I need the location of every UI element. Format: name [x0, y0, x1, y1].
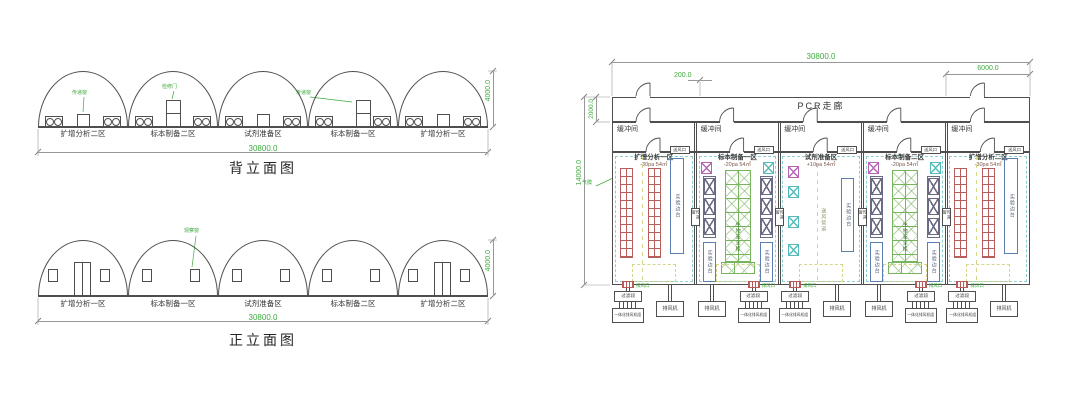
supply-outlet-box: 送风口 [1004, 146, 1024, 154]
fan-circle [292, 118, 300, 126]
exhaust-grille [748, 281, 760, 288]
box-label: 过滤段 [955, 294, 969, 299]
internal-wall [780, 122, 781, 285]
window [190, 269, 200, 282]
equipment-cabinet [166, 100, 181, 127]
exhaust-unit-box: 一体化排风机组 [779, 308, 811, 323]
box-label: 一体化排风机组 [615, 314, 642, 318]
pass-box [788, 186, 799, 198]
fan-circle [226, 118, 234, 126]
duct-vertical-label: 送风管道 [820, 208, 825, 252]
internal-wall [947, 122, 948, 285]
fan-circle [324, 118, 332, 126]
pcr-instrument-bench [982, 168, 995, 258]
room-width-dim-line [946, 74, 1030, 75]
fan-circle [374, 118, 382, 126]
side-equipment-bench: 实验边台 [1004, 158, 1018, 254]
fan-circle [234, 118, 242, 126]
exhaust-unit-box: 一体化排风机组 [738, 308, 770, 323]
filter-section-box: 过滤段 [740, 291, 768, 302]
exhaust-fan-unit [45, 116, 63, 127]
room-name-label: 试剂准备区 [779, 155, 863, 162]
window [48, 269, 58, 282]
pass-box [788, 216, 799, 228]
plan-offset-dimension: 200.0 [674, 72, 692, 79]
rear-elevation-title: 背立面图 [38, 161, 488, 175]
front-elevation-title: 正立面图 [38, 333, 488, 347]
stool-symbol [928, 178, 939, 195]
stool-symbol [761, 198, 772, 215]
window [408, 269, 418, 282]
buffer-room-label: 缓冲间 [701, 126, 722, 133]
rear-dim-line [38, 152, 488, 153]
exhaust-grille [915, 281, 927, 288]
box-label: 送风口 [924, 148, 937, 152]
window [142, 269, 152, 282]
box-label: 排风机 [662, 306, 677, 311]
side-equipment-bench: 实验边台 [841, 178, 854, 252]
box-label: 排风机 [871, 306, 886, 311]
pass-window-label: 传递窗 [775, 210, 783, 224]
duct-stem [713, 285, 714, 301]
exhaust-fan-unit [283, 116, 301, 127]
stool-symbol [871, 178, 882, 195]
equipment-box [437, 114, 450, 127]
exhaust-fan-unit [463, 116, 481, 127]
offset-dim-line [688, 80, 712, 81]
exhaust-outlet-annotation: 排风口 [970, 284, 984, 289]
exhaust-fan-unit [103, 116, 121, 127]
corridor-wall [650, 121, 696, 122]
duct-stem [710, 285, 711, 301]
corridor-wall [734, 121, 780, 122]
internal-wall [778, 122, 779, 285]
exhaust-outlet-annotation: 排风口 [762, 284, 776, 289]
box-label: 排风机 [830, 306, 845, 311]
exhaust-fan-unit [193, 116, 211, 127]
side-equipment-bench: 实验边台 [703, 242, 716, 282]
door-gap-mask [636, 96, 650, 99]
box-label: 过滤段 [788, 294, 802, 299]
front-ground-line [38, 295, 488, 296]
stool-symbol [871, 218, 882, 235]
stool-symbol [928, 218, 939, 235]
fan-circle [406, 118, 414, 126]
side-equipment-bench: 实验边台 [870, 242, 883, 282]
exhaust-outlet-annotation: 排风口 [636, 284, 650, 289]
internal-wall [696, 122, 697, 285]
dome-outline [128, 240, 218, 296]
plan-corridor-depth-dimension: 2000.0 [589, 99, 596, 119]
front-height-dimension: 4000.0 [485, 250, 492, 271]
stool-symbol [704, 218, 715, 235]
exhaust-fan-box: 排风机 [865, 301, 893, 317]
rear-zone-label: 扩增分析二区 [38, 130, 128, 138]
pass-window-box: 传递窗 [691, 208, 700, 226]
fan-circle [284, 118, 292, 126]
exhaust-grille [789, 281, 801, 288]
box-label: 过滤段 [914, 294, 928, 299]
box-label: 过滤段 [747, 294, 761, 299]
exhaust-unit-box: 一体化排风机组 [612, 308, 644, 323]
buffer-room-label: 缓冲间 [617, 126, 638, 133]
window [280, 269, 290, 282]
window [370, 269, 380, 282]
duct-stem [835, 285, 836, 301]
fan-circle [472, 118, 480, 126]
equipment-box [257, 114, 270, 127]
exhaust-fan-box: 排风机 [990, 301, 1018, 317]
plan-width-dimension: 30800.0 [612, 53, 1030, 61]
room-name-label: 标本制备二区 [863, 155, 947, 162]
duct-stem [668, 285, 669, 301]
equipment-box [77, 114, 90, 127]
cad-drawing-canvas: 背立面图 30800.0 4000.0 正立面图 30800.0 4000.0 … [0, 0, 1080, 402]
rear-ground-line [38, 126, 488, 127]
window [100, 269, 110, 282]
pass-window-label: 传递窗 [692, 210, 700, 224]
pass-box [788, 166, 799, 178]
duct-stem [838, 285, 839, 301]
side-equipment-bench: 实验边台 [760, 242, 773, 282]
buffer-wall [779, 151, 813, 152]
duct-stem [877, 285, 878, 301]
pcr-instrument-bench [620, 168, 633, 258]
buffer-room-label: 缓冲间 [951, 126, 972, 133]
supply-outlet-box: 送风口 [837, 146, 857, 154]
bench-vertical-label: 实验边台 [874, 250, 879, 274]
buffer-wall [946, 151, 980, 152]
fan-circle [194, 118, 202, 126]
bench-vertical-label: 实验边台 [1009, 194, 1014, 218]
entrance-door [74, 262, 91, 296]
exhaust-fan-box: 排风机 [698, 301, 726, 317]
window [322, 269, 332, 282]
stool-symbol [761, 178, 772, 195]
filter-section-box: 过滤段 [907, 291, 935, 302]
internal-wall [861, 122, 862, 285]
membrane-annotation: 气膜 [582, 181, 592, 186]
fan-circle [136, 118, 144, 126]
fan-circle [112, 118, 120, 126]
dome-outline [308, 240, 398, 296]
exhaust-unit-box: 一体化排风机组 [946, 308, 978, 323]
box-label: 一体化排风机组 [782, 314, 809, 318]
corridor-wall [901, 121, 947, 122]
exhaust-unit-box: 一体化排风机组 [905, 308, 937, 323]
bench-vertical-label: 实验边台 [931, 250, 936, 274]
floor-marking [883, 264, 927, 282]
front-zone-label: 扩增分析一区 [38, 300, 128, 308]
internal-wall [694, 122, 695, 285]
pass-box [930, 162, 941, 174]
corridor-wall [946, 121, 970, 122]
exhaust-fan-unit [373, 116, 391, 127]
window [232, 269, 242, 282]
box-label: 过滤段 [621, 294, 635, 299]
plan-room-width-dimension: 6000.0 [946, 65, 1030, 72]
bench-vertical-label: 实验边台 [675, 194, 680, 218]
fan-circle [202, 118, 210, 126]
rear-zone-label: 标本制备二区 [128, 130, 218, 138]
filter-section-box: 过滤段 [781, 291, 809, 302]
box-label: 排风机 [997, 306, 1012, 311]
cabinet-vertical-label: 生物安全柜 [735, 222, 740, 260]
box-label: 一体化排风机组 [949, 314, 976, 318]
bench-vertical-label: 实验边台 [707, 250, 712, 274]
door-gap-mask [970, 96, 984, 99]
buffer-wall [696, 151, 730, 152]
buffer-wall [863, 151, 897, 152]
box-label: 一体化排风机组 [740, 314, 767, 318]
exhaust-fan-unit [315, 116, 333, 127]
corridor-wall [984, 121, 1030, 122]
front-zone-label: 扩增分析二区 [398, 300, 488, 308]
rear-vdim-line [493, 71, 494, 127]
duct-stem [1005, 285, 1006, 301]
rear-height-dimension: 4000.0 [485, 80, 492, 101]
cabinet-vertical-label: 生物安全柜 [902, 222, 907, 260]
room-name-label: 标本制备一区 [696, 155, 780, 162]
front-vdim-line [493, 240, 494, 296]
floor-marking [632, 264, 676, 282]
pcr-instrument-bench [648, 168, 661, 258]
box-label: 送风口 [841, 148, 854, 152]
rear-zone-label: 试剂准备区 [218, 130, 308, 138]
fan-circle [54, 118, 62, 126]
corridor-wall [863, 121, 887, 122]
fan-circle [414, 118, 422, 126]
corridor-depth-dim-line [596, 97, 597, 122]
pass-box [763, 162, 774, 174]
rear-annotation: 传递窗 [296, 91, 311, 96]
buffer-wall [612, 151, 646, 152]
side-equipment-bench: 实验边台 [670, 158, 684, 254]
window [460, 269, 470, 282]
floor-marking [716, 264, 760, 282]
stool-symbol [704, 178, 715, 195]
front-zone-label: 标本制备一区 [128, 300, 218, 308]
front-zone-label: 标本制备二区 [308, 300, 398, 308]
equipment-cabinet [356, 100, 371, 127]
corridor-wall [817, 121, 863, 122]
front-dim-line [38, 321, 488, 322]
side-equipment-bench: 实验边台 [927, 242, 940, 282]
rear-annotation: 检修门 [162, 85, 177, 90]
plan-dim-line [612, 62, 1030, 63]
stool-symbol [871, 198, 882, 215]
total-depth-dim-line [584, 97, 585, 285]
supply-outlet-box: 送风口 [754, 146, 774, 154]
rear-zone-label: 标本制备一区 [308, 130, 398, 138]
stool-symbol [704, 198, 715, 215]
box-label: 送风口 [757, 148, 770, 152]
pcr-instrument-bench [954, 168, 967, 258]
corridor-wall [612, 121, 636, 122]
stool-symbol [928, 198, 939, 215]
entrance-door [434, 262, 451, 296]
exhaust-fan-unit [135, 116, 153, 127]
corridor-wall [779, 121, 803, 122]
filter-section-box: 过滤段 [948, 291, 976, 302]
duct-stem [880, 285, 881, 301]
exhaust-outlet-annotation: 排风口 [929, 284, 943, 289]
rear-annotation: 传递窗 [72, 91, 87, 96]
buffer-room-label: 缓冲间 [784, 126, 805, 133]
corridor-wall [696, 121, 720, 122]
exhaust-fan-box: 排风机 [656, 301, 684, 317]
exhaust-grille [956, 281, 968, 288]
internal-wall [945, 122, 946, 285]
front-annotation: 观察窗 [184, 229, 199, 234]
pass-box [788, 244, 799, 256]
duct-stem [671, 285, 672, 301]
dome-outline [218, 240, 308, 296]
exhaust-fan-unit [225, 116, 243, 127]
stool-symbol [761, 218, 772, 235]
fan-circle [46, 118, 54, 126]
fan-circle [104, 118, 112, 126]
pass-window-box: 传递窗 [942, 208, 951, 226]
fan-circle [382, 118, 390, 126]
internal-wall [863, 122, 864, 285]
duct-stem [1002, 285, 1003, 301]
supply-outlet-box: 送风口 [670, 146, 690, 154]
exhaust-fan-unit [405, 116, 423, 127]
supply-outlet-box: 送风口 [921, 146, 941, 154]
box-label: 排风机 [704, 306, 719, 311]
box-label: 送风口 [674, 148, 687, 152]
exhaust-outlet-annotation: 排风口 [803, 284, 817, 289]
fan-circle [144, 118, 152, 126]
pass-window-label: 传递窗 [942, 210, 950, 224]
bench-vertical-label: 实验边台 [845, 203, 850, 227]
exhaust-fan-box: 排风机 [823, 301, 851, 317]
pass-window-box: 传递窗 [775, 208, 784, 226]
pass-window-box: 传递窗 [858, 208, 867, 226]
pass-box [701, 162, 712, 174]
box-label: 一体化排风机组 [907, 314, 934, 318]
buffer-room-label: 缓冲间 [868, 126, 889, 133]
front-zone-label: 试剂准备区 [218, 300, 308, 308]
filter-section-box: 过滤段 [614, 291, 642, 302]
floor-marking [799, 264, 843, 282]
bench-vertical-label: 实验边台 [764, 250, 769, 274]
fan-circle [464, 118, 472, 126]
box-label: 送风口 [1008, 148, 1021, 152]
fan-circle [316, 118, 324, 126]
exhaust-grille [622, 281, 634, 288]
pass-box [868, 162, 879, 174]
rear-zone-label: 扩增分析一区 [398, 130, 488, 138]
pass-window-label: 传递窗 [859, 210, 867, 224]
floor-marking [966, 264, 1010, 282]
